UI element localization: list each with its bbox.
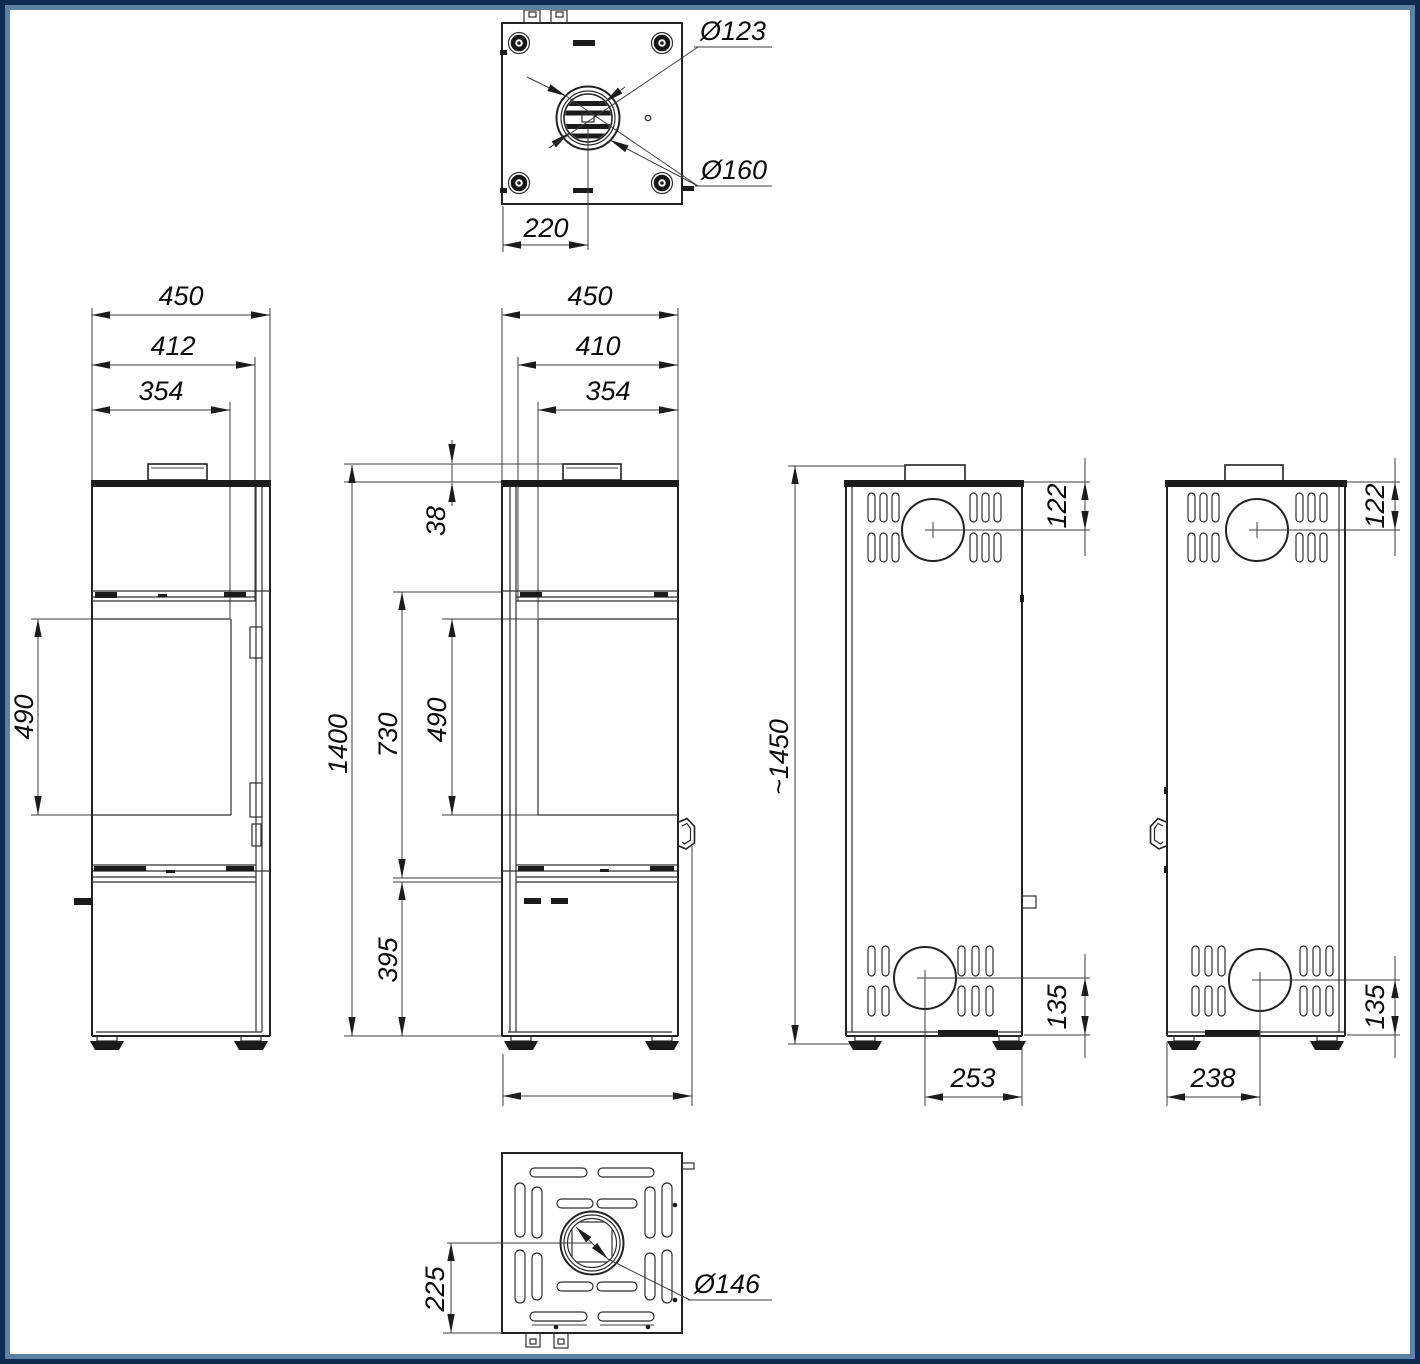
dim-rear-right-bottom-distance: 238 xyxy=(1189,1063,1235,1093)
foot-base xyxy=(848,1041,882,1050)
dim-rear-left-bottom-distance: 253 xyxy=(949,1063,995,1093)
base-vent-dash-2 xyxy=(551,898,568,904)
front-glass xyxy=(92,619,231,815)
dim-front-glass-height: 490 xyxy=(9,694,39,739)
base-vent-dash-1 xyxy=(524,898,541,904)
dim-front-door-width: 412 xyxy=(150,331,195,361)
dim-line-side-overall xyxy=(503,846,692,1106)
side-view-extensions xyxy=(344,308,678,1036)
foot-base xyxy=(234,1041,268,1050)
dim-front-width: 450 xyxy=(158,281,203,311)
dim-side-collar-height: 38 xyxy=(421,506,451,536)
dim-top-dia-outer: Ø160 xyxy=(700,155,767,185)
dim-rear-right-bottom-offset: 135 xyxy=(1360,983,1390,1029)
rear-left-handle-tab xyxy=(1022,896,1036,908)
dim-bottom-offset: 225 xyxy=(420,1265,450,1312)
rear-view-left: 122 135 253 ~1450 xyxy=(764,458,1090,1106)
side-top-plate xyxy=(502,480,678,487)
base-handle xyxy=(74,898,92,905)
dim-side-total-height: 1400 xyxy=(323,714,353,774)
dim-side-glass-height: 490 xyxy=(422,697,452,742)
dia123-leader xyxy=(549,47,772,148)
dim-rear-left-total-height: ~1450 xyxy=(764,719,794,795)
dim-side-glass-width: 354 xyxy=(585,376,630,406)
dim-bottom-dia: Ø146 xyxy=(693,1269,761,1299)
adjustable-feet xyxy=(90,1036,1344,1050)
top-view-pin xyxy=(645,115,651,121)
dim-side-base-height: 395 xyxy=(373,936,403,982)
side-flue-collar xyxy=(563,464,621,480)
top-view: Ø123 Ø160 220 xyxy=(500,10,772,252)
dim-rear-left-bottom-offset: 135 xyxy=(1042,983,1072,1029)
rear-vent-slots xyxy=(868,493,1333,1016)
foot-base xyxy=(90,1041,124,1050)
dim-side-upper-height: 730 xyxy=(373,712,403,757)
top-view-slot-marks xyxy=(500,40,694,193)
foot-base xyxy=(645,1041,679,1050)
foot-base xyxy=(504,1041,538,1050)
dim-rear-right-top-offset: 122 xyxy=(1360,483,1390,528)
dim-side-door-width: 410 xyxy=(575,331,620,361)
foot-base xyxy=(1167,1041,1201,1050)
front-top-plate xyxy=(92,480,270,487)
dim-side-width: 450 xyxy=(567,281,612,311)
dim-top-dia-inner: Ø123 xyxy=(699,16,766,46)
foot-base xyxy=(1310,1041,1344,1050)
bottom-view-lug xyxy=(682,1163,694,1169)
dim-top-offset: 220 xyxy=(522,213,568,243)
dim-rear-left-top-offset: 122 xyxy=(1042,483,1072,528)
side-view-body xyxy=(502,464,695,1036)
top-view-tabs xyxy=(524,10,567,23)
bottom-view: Ø146 225 xyxy=(420,1153,772,1348)
rear-right-collar xyxy=(1225,465,1283,481)
side-glass xyxy=(538,619,678,815)
bottom-view-tabs xyxy=(526,1333,568,1348)
rear-left-collar xyxy=(905,465,965,481)
side-view: 450 410 354 38 1400 730 490 395 xyxy=(323,281,695,1106)
front-flue-collar xyxy=(148,464,207,480)
foot-base xyxy=(992,1041,1026,1050)
technical-drawing: Ø123 Ø160 220 450 412 354 490 xyxy=(0,0,1420,1364)
dim-front-glass-width: 354 xyxy=(138,376,183,406)
drawing-page: Ø123 Ø160 220 450 412 354 490 xyxy=(0,0,1420,1364)
front-view-body xyxy=(74,464,270,1036)
front-view: 450 412 354 490 xyxy=(9,281,270,1036)
